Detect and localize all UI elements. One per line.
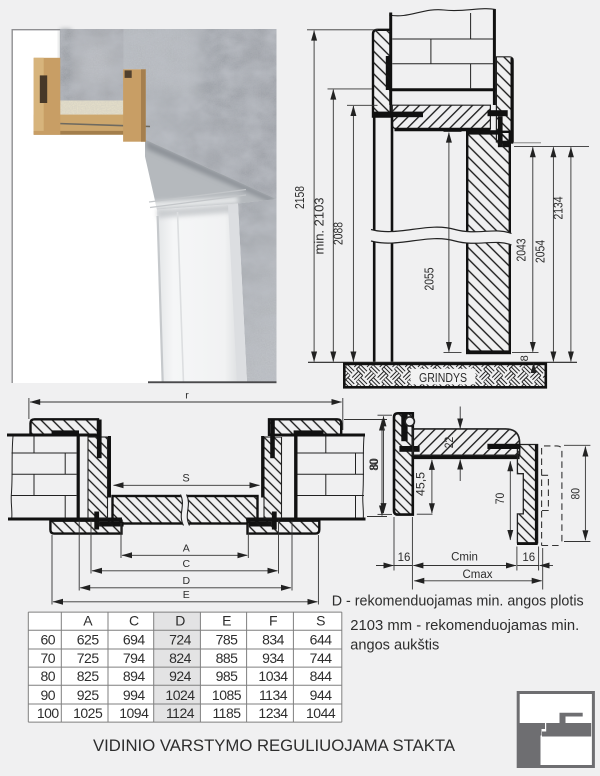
svg-text:825: 825 xyxy=(77,668,100,684)
svg-text:E: E xyxy=(222,612,231,628)
svg-text:725: 725 xyxy=(77,650,100,666)
svg-text:2103 mm - rekomenduojamas min.: 2103 mm - rekomenduojamas min. xyxy=(350,618,579,634)
svg-text:644: 644 xyxy=(310,632,333,648)
svg-text:994: 994 xyxy=(123,687,146,703)
svg-text:70: 70 xyxy=(495,493,507,505)
svg-text:r: r xyxy=(185,390,189,402)
svg-text:C: C xyxy=(129,612,139,628)
svg-text:2134: 2134 xyxy=(552,196,566,219)
svg-text:794: 794 xyxy=(123,650,146,666)
svg-text:Cmin: Cmin xyxy=(451,552,478,564)
svg-text:angos aukštis: angos aukštis xyxy=(350,638,439,654)
svg-text:844: 844 xyxy=(310,668,333,684)
svg-text:894: 894 xyxy=(123,668,146,684)
svg-text:16: 16 xyxy=(398,552,411,564)
svg-text:1134: 1134 xyxy=(259,687,288,703)
svg-text:2088: 2088 xyxy=(332,222,346,245)
svg-text:885: 885 xyxy=(216,650,239,666)
svg-text:2054: 2054 xyxy=(534,240,548,263)
svg-text:VIDINIO VARSTYMO REGULIUOJAMA: VIDINIO VARSTYMO REGULIUOJAMA STAKTA xyxy=(93,736,456,755)
svg-text:2043: 2043 xyxy=(515,238,529,261)
svg-text:80: 80 xyxy=(41,668,56,684)
svg-text:90: 90 xyxy=(41,687,56,703)
svg-text:1234: 1234 xyxy=(258,705,288,721)
svg-text:E: E xyxy=(183,589,190,601)
svg-text:A: A xyxy=(83,612,93,628)
svg-text:D: D xyxy=(183,575,191,587)
svg-text:1024: 1024 xyxy=(165,687,195,703)
svg-text:834: 834 xyxy=(262,632,285,648)
svg-text:2158: 2158 xyxy=(293,186,307,209)
svg-text:1085: 1085 xyxy=(212,687,242,703)
svg-text:944: 944 xyxy=(310,687,333,703)
svg-text:744: 744 xyxy=(310,650,333,666)
svg-text:80: 80 xyxy=(570,488,582,500)
svg-text:A: A xyxy=(183,542,190,554)
svg-text:100: 100 xyxy=(37,705,60,721)
svg-text:min. 2103: min. 2103 xyxy=(313,197,327,254)
svg-text:625: 625 xyxy=(77,632,100,648)
svg-text:1185: 1185 xyxy=(212,705,241,721)
svg-text:934: 934 xyxy=(262,650,285,666)
svg-text:1044: 1044 xyxy=(306,705,336,721)
svg-text:1124: 1124 xyxy=(166,705,195,721)
svg-text:D - rekomenduojamas min. angos: D - rekomenduojamas min. angos plotis xyxy=(332,594,584,610)
svg-text:694: 694 xyxy=(123,632,146,648)
svg-text:1025: 1025 xyxy=(73,705,103,721)
svg-text:1034: 1034 xyxy=(258,668,288,684)
svg-text:724: 724 xyxy=(169,632,192,648)
svg-text:985: 985 xyxy=(216,668,239,684)
svg-text:S: S xyxy=(316,612,325,628)
svg-text:S: S xyxy=(182,472,189,484)
svg-text:C: C xyxy=(183,558,191,570)
svg-text:D: D xyxy=(175,612,185,628)
svg-text:GRINDYS: GRINDYS xyxy=(419,370,467,385)
svg-text:8: 8 xyxy=(519,355,531,361)
svg-text:824: 824 xyxy=(169,650,192,666)
svg-text:925: 925 xyxy=(77,687,100,703)
svg-text:45,5: 45,5 xyxy=(415,472,427,496)
svg-text:60: 60 xyxy=(41,632,56,648)
svg-text:F: F xyxy=(269,612,277,628)
svg-text:2055: 2055 xyxy=(423,267,437,290)
svg-text:16: 16 xyxy=(522,552,535,564)
svg-text:785: 785 xyxy=(216,632,239,648)
svg-text:1094: 1094 xyxy=(119,705,149,721)
svg-text:80: 80 xyxy=(369,459,381,471)
svg-text:70: 70 xyxy=(41,650,56,666)
svg-text:Cmax: Cmax xyxy=(462,569,492,581)
svg-text:924: 924 xyxy=(169,668,192,684)
svg-text:22: 22 xyxy=(444,437,456,449)
